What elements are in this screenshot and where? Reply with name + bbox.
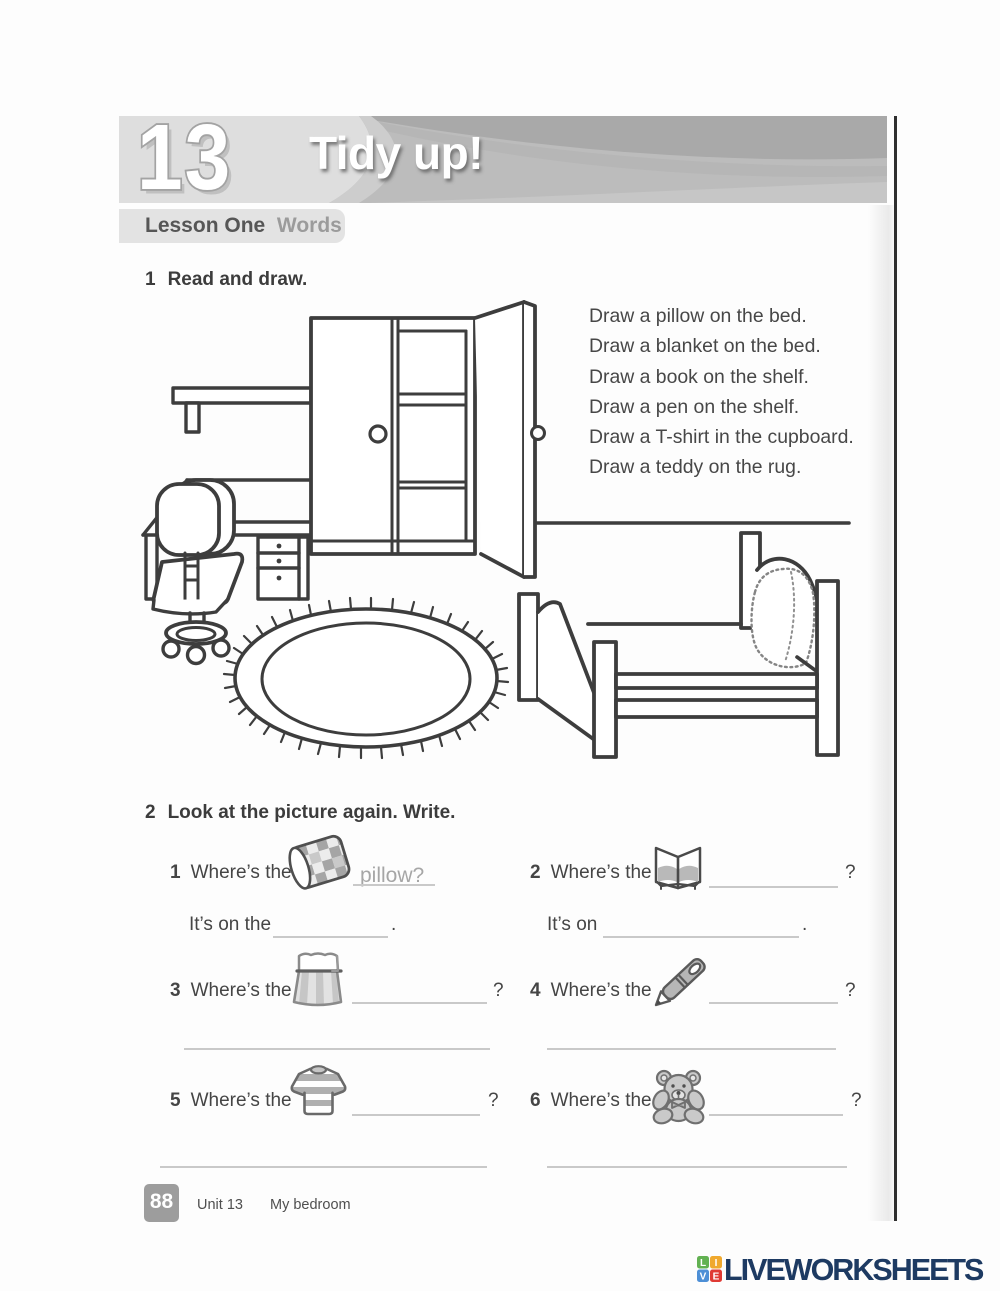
- svg-text:E: E: [713, 1272, 720, 1283]
- svg-text:V: V: [700, 1272, 707, 1283]
- svg-text:I: I: [715, 1258, 718, 1269]
- svg-text:L: L: [700, 1258, 706, 1269]
